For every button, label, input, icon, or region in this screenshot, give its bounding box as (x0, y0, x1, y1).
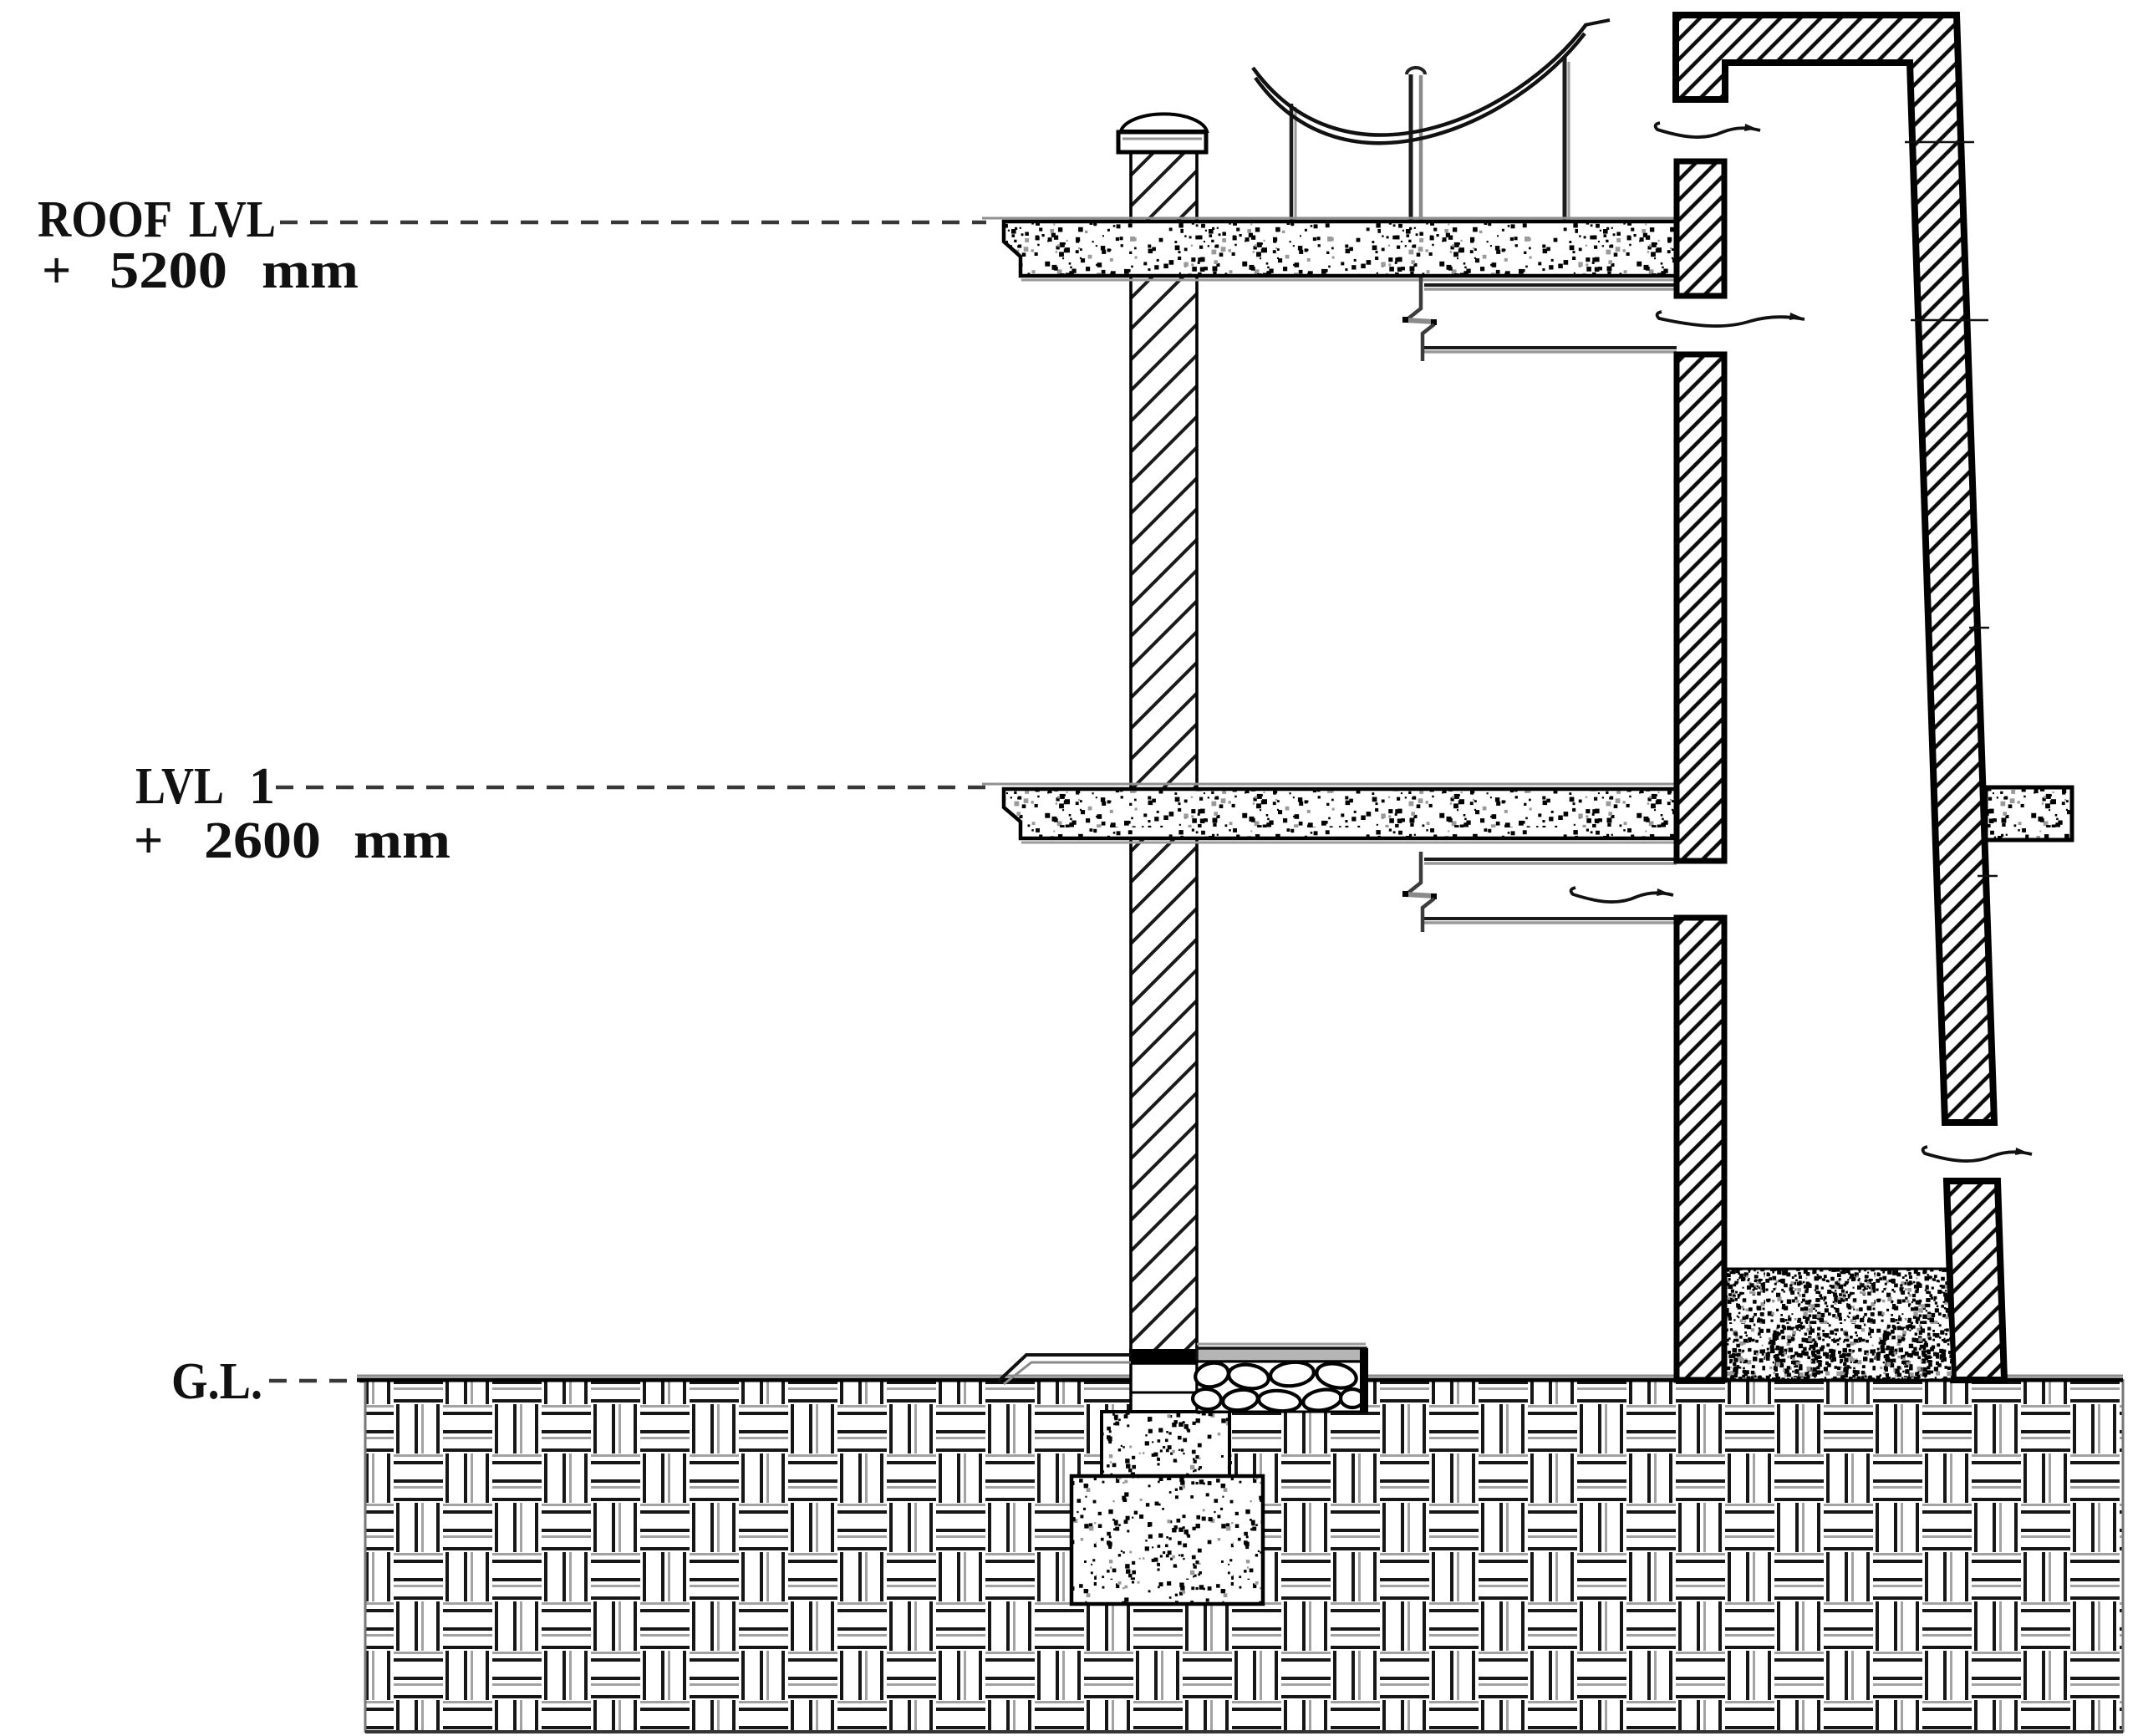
svg-text:G.L.: G.L. (171, 1353, 262, 1410)
svg-text:5200: 5200 (109, 242, 227, 299)
svg-text:mm: mm (262, 242, 359, 299)
svg-text:+: + (134, 812, 163, 869)
svg-text:2600: 2600 (204, 812, 321, 869)
svg-text:1: 1 (249, 758, 275, 815)
svg-text:mm: mm (354, 812, 450, 869)
svg-text:LVL: LVL (135, 758, 224, 815)
svg-text:ROOF: ROOF (38, 191, 172, 248)
svg-text:LVL: LVL (189, 191, 276, 248)
svg-text:+: + (42, 242, 71, 299)
